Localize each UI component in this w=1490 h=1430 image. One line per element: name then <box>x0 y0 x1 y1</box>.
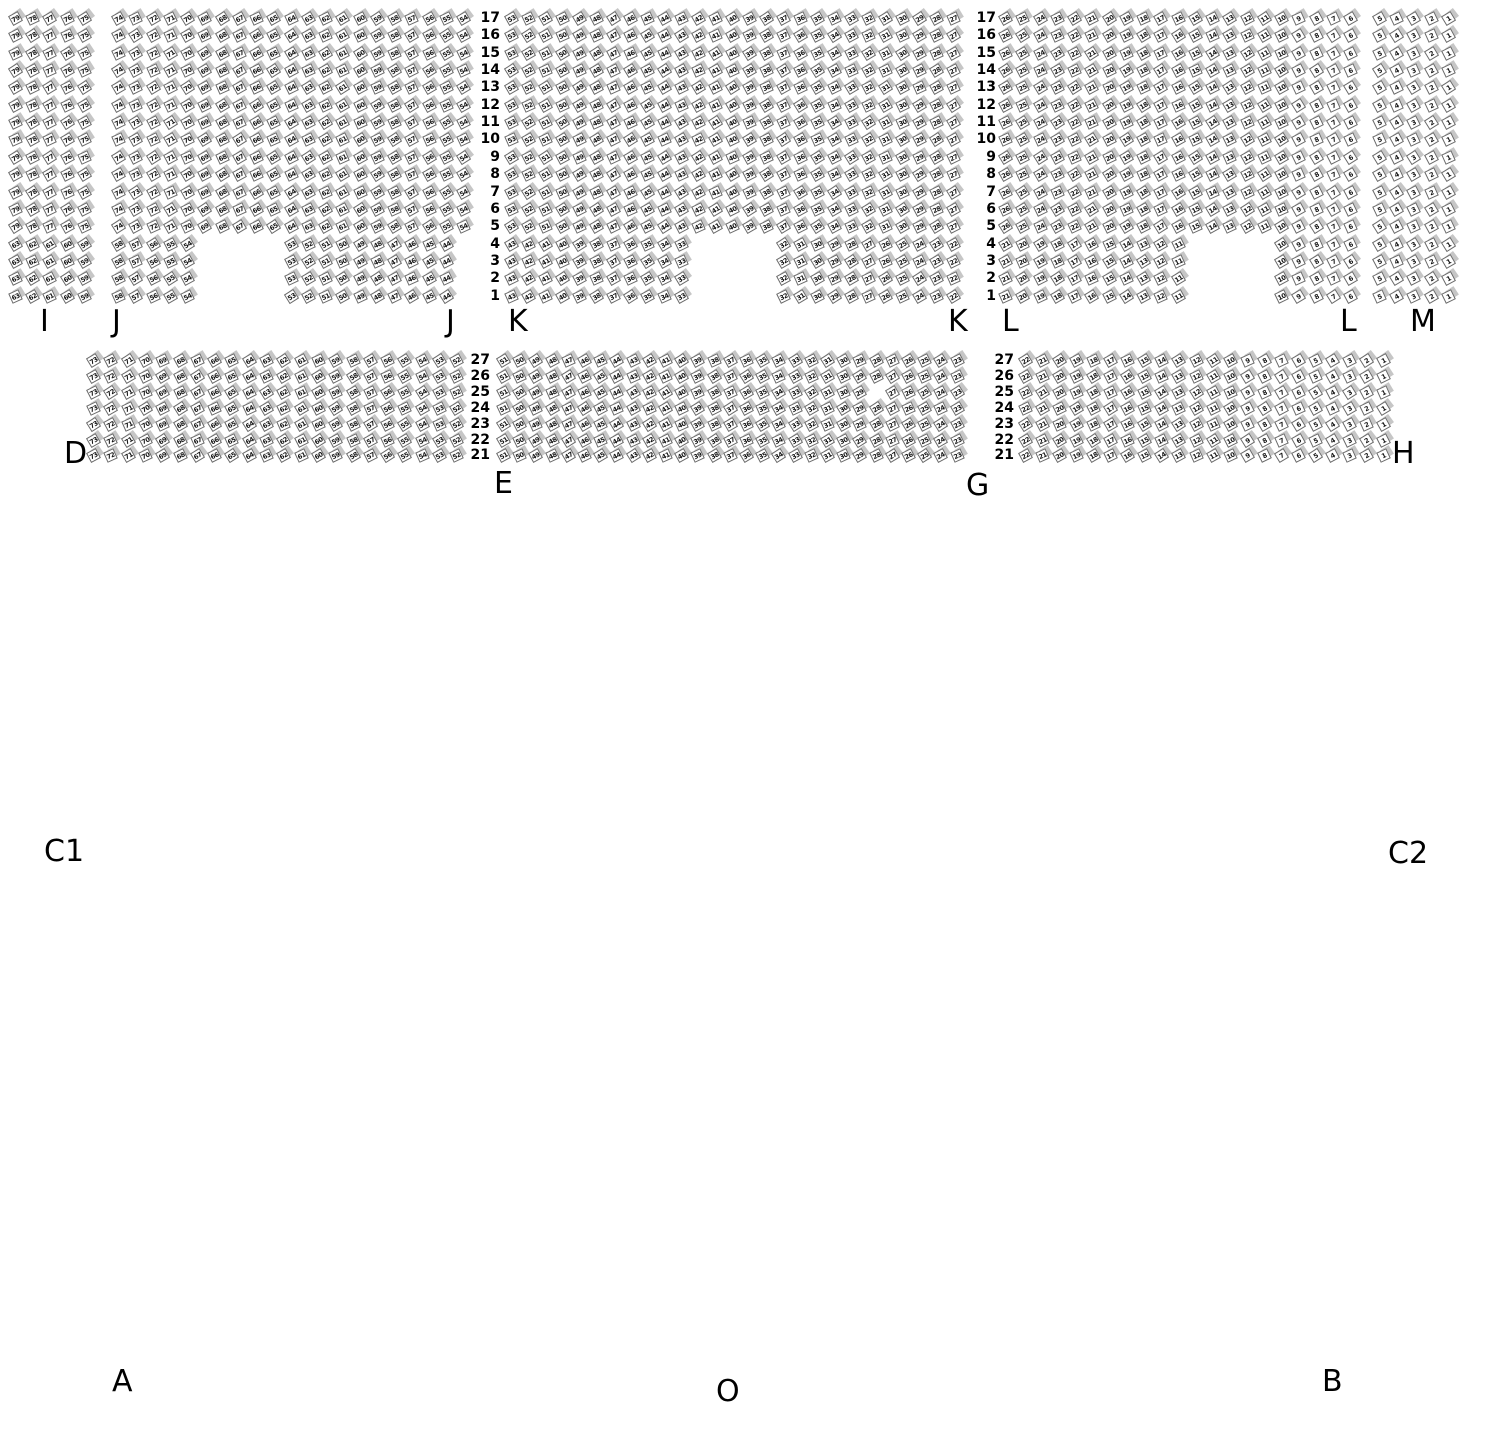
seat[interactable]: 63 <box>303 62 318 77</box>
seat[interactable]: 15 <box>1190 131 1205 146</box>
seat[interactable]: 70 <box>182 27 197 42</box>
seat[interactable]: 61 <box>296 384 311 399</box>
seat[interactable]: 50 <box>514 352 529 367</box>
seat[interactable]: 2 <box>1426 218 1441 233</box>
seat[interactable]: 69 <box>199 62 214 77</box>
seat[interactable]: 14 <box>1207 166 1222 181</box>
seat[interactable]: 53 <box>506 27 521 42</box>
seat[interactable]: 60 <box>355 131 370 146</box>
seat[interactable]: 19 <box>1121 131 1136 146</box>
seat[interactable]: 43 <box>676 79 691 94</box>
seat[interactable]: 68 <box>175 352 190 367</box>
seat[interactable]: 40 <box>727 131 742 146</box>
seat[interactable]: 55 <box>441 10 456 25</box>
seat[interactable]: 13 <box>1224 62 1239 77</box>
seat[interactable]: 59 <box>330 400 345 415</box>
seat[interactable]: 19 <box>1121 45 1136 60</box>
seat[interactable]: 8 <box>1311 218 1326 233</box>
seat[interactable]: 23 <box>1052 97 1067 112</box>
seat[interactable]: 28 <box>931 131 946 146</box>
seat[interactable]: 65 <box>268 131 283 146</box>
seat[interactable]: 3 <box>1408 253 1423 268</box>
seat[interactable]: 55 <box>165 236 180 251</box>
seat[interactable]: 5 <box>1374 253 1389 268</box>
seat[interactable]: 10 <box>1276 253 1291 268</box>
seat[interactable]: 72 <box>148 218 163 233</box>
seat[interactable]: 20 <box>1104 184 1119 199</box>
seat[interactable]: 35 <box>757 368 772 383</box>
seat[interactable]: 57 <box>406 10 421 25</box>
seat[interactable]: 70 <box>140 352 155 367</box>
seat[interactable]: 12 <box>1155 270 1170 285</box>
seat[interactable]: 34 <box>829 10 844 25</box>
seat[interactable]: 79 <box>10 10 25 25</box>
seat[interactable]: 74 <box>113 131 128 146</box>
seat[interactable]: 31 <box>880 166 895 181</box>
seat[interactable]: 9 <box>1293 270 1308 285</box>
seat[interactable]: 57 <box>406 45 421 60</box>
seat[interactable]: 53 <box>506 184 521 199</box>
seat[interactable]: 41 <box>710 149 725 164</box>
seat[interactable]: 14 <box>1207 114 1222 129</box>
seat[interactable]: 25 <box>919 432 934 447</box>
seat[interactable]: 36 <box>741 352 756 367</box>
seat[interactable]: 50 <box>557 10 572 25</box>
seat[interactable]: 8 <box>1311 79 1326 94</box>
seat[interactable]: 49 <box>574 218 589 233</box>
seat[interactable]: 37 <box>778 149 793 164</box>
seat[interactable]: 31 <box>880 114 895 129</box>
seat[interactable]: 24 <box>1035 131 1050 146</box>
seat[interactable]: 5 <box>1374 62 1389 77</box>
seat[interactable]: 4 <box>1391 236 1406 251</box>
seat[interactable]: 59 <box>372 218 387 233</box>
seat[interactable]: 47 <box>608 10 623 25</box>
seat[interactable]: 10 <box>1276 10 1291 25</box>
seat[interactable]: 3 <box>1408 97 1423 112</box>
seat[interactable]: 59 <box>79 253 94 268</box>
seat[interactable]: 31 <box>880 201 895 216</box>
seat[interactable]: 19 <box>1035 270 1050 285</box>
seat[interactable]: 48 <box>591 114 606 129</box>
seat[interactable]: 56 <box>382 400 397 415</box>
seat[interactable]: 47 <box>563 416 578 431</box>
seat[interactable]: 17 <box>1155 218 1170 233</box>
seat[interactable]: 4 <box>1391 288 1406 303</box>
seat[interactable]: 45 <box>595 384 610 399</box>
seat[interactable]: 60 <box>355 184 370 199</box>
seat[interactable]: 70 <box>182 166 197 181</box>
seat[interactable]: 4 <box>1391 253 1406 268</box>
seat[interactable]: 8 <box>1311 270 1326 285</box>
seat[interactable]: 34 <box>829 114 844 129</box>
seat[interactable]: 55 <box>165 288 180 303</box>
seat[interactable]: 38 <box>761 184 776 199</box>
seat[interactable]: 68 <box>217 10 232 25</box>
seat[interactable]: 53 <box>434 384 449 399</box>
seat[interactable]: 38 <box>709 447 724 462</box>
seat[interactable]: 16 <box>1173 149 1188 164</box>
seat[interactable]: 53 <box>506 131 521 146</box>
seat[interactable]: 22 <box>948 253 963 268</box>
seat[interactable]: 20 <box>1104 97 1119 112</box>
seat[interactable]: 36 <box>795 131 810 146</box>
seat[interactable]: 48 <box>547 352 562 367</box>
seat[interactable]: 46 <box>625 149 640 164</box>
seat[interactable]: 42 <box>644 384 659 399</box>
seat[interactable]: 6 <box>1293 352 1308 367</box>
seat[interactable]: 66 <box>251 149 266 164</box>
seat[interactable]: 27 <box>887 400 902 415</box>
seat[interactable]: 4 <box>1391 79 1406 94</box>
seat[interactable]: 74 <box>113 114 128 129</box>
seat[interactable]: 79 <box>10 79 25 94</box>
seat[interactable]: 6 <box>1345 270 1360 285</box>
seat[interactable]: 33 <box>790 368 805 383</box>
seat[interactable]: 29 <box>854 416 869 431</box>
seat[interactable]: 4 <box>1391 218 1406 233</box>
seat[interactable]: 53 <box>286 236 301 251</box>
seat[interactable]: 16 <box>1086 270 1101 285</box>
seat[interactable]: 56 <box>148 270 163 285</box>
seat[interactable]: 51 <box>540 184 555 199</box>
seat[interactable]: 54 <box>458 97 473 112</box>
seat[interactable]: 62 <box>278 447 293 462</box>
seat[interactable]: 79 <box>10 201 25 216</box>
seat[interactable]: 69 <box>199 218 214 233</box>
seat[interactable]: 10 <box>1276 149 1291 164</box>
seat[interactable]: 26 <box>880 253 895 268</box>
seat[interactable]: 41 <box>660 447 675 462</box>
seat[interactable]: 50 <box>514 416 529 431</box>
seat[interactable]: 50 <box>557 166 572 181</box>
seat[interactable]: 78 <box>27 149 42 164</box>
seat[interactable]: 60 <box>313 447 328 462</box>
seat[interactable]: 68 <box>175 384 190 399</box>
seat[interactable]: 3 <box>1408 236 1423 251</box>
seat[interactable]: 15 <box>1104 253 1119 268</box>
seat[interactable]: 57 <box>365 384 380 399</box>
seat[interactable]: 27 <box>948 184 963 199</box>
seat[interactable]: 14 <box>1207 218 1222 233</box>
seat[interactable]: 24 <box>935 368 950 383</box>
seat[interactable]: 27 <box>948 45 963 60</box>
seat[interactable]: 17 <box>1155 149 1170 164</box>
seat[interactable]: 54 <box>417 400 432 415</box>
seat[interactable]: 18 <box>1052 253 1067 268</box>
seat[interactable]: 61 <box>296 432 311 447</box>
seat[interactable]: 68 <box>217 166 232 181</box>
seat[interactable]: 47 <box>608 97 623 112</box>
seat[interactable]: 12 <box>1242 114 1257 129</box>
seat[interactable]: 71 <box>165 62 180 77</box>
seat[interactable]: 37 <box>725 400 740 415</box>
seat[interactable]: 11 <box>1259 10 1274 25</box>
seat[interactable]: 53 <box>506 10 521 25</box>
seat[interactable]: 34 <box>829 201 844 216</box>
seat[interactable]: 54 <box>417 432 432 447</box>
seat[interactable]: 65 <box>268 166 283 181</box>
seat[interactable]: 71 <box>165 184 180 199</box>
seat[interactable]: 63 <box>303 218 318 233</box>
seat[interactable]: 73 <box>88 384 103 399</box>
seat[interactable]: 65 <box>268 97 283 112</box>
seat[interactable]: 30 <box>897 97 912 112</box>
seat[interactable]: 45 <box>642 114 657 129</box>
seat[interactable]: 75 <box>79 184 94 199</box>
seat[interactable]: 23 <box>931 253 946 268</box>
seat[interactable]: 65 <box>268 27 283 42</box>
seat[interactable]: 41 <box>710 45 725 60</box>
seat[interactable]: 51 <box>540 79 555 94</box>
seat[interactable]: 54 <box>182 270 197 285</box>
seat[interactable]: 13 <box>1173 352 1188 367</box>
seat[interactable]: 57 <box>406 184 421 199</box>
seat[interactable]: 42 <box>644 352 659 367</box>
seat[interactable]: 47 <box>608 45 623 60</box>
seat[interactable]: 11 <box>1259 218 1274 233</box>
seat[interactable]: 36 <box>795 27 810 42</box>
seat[interactable]: 34 <box>829 27 844 42</box>
seat[interactable]: 25 <box>919 352 934 367</box>
seat[interactable]: 62 <box>27 253 42 268</box>
seat[interactable]: 45 <box>424 253 439 268</box>
seat[interactable]: 65 <box>268 184 283 199</box>
seat[interactable]: 11 <box>1173 253 1188 268</box>
seat[interactable]: 10 <box>1276 27 1291 42</box>
seat[interactable]: 13 <box>1224 97 1239 112</box>
seat[interactable]: 41 <box>540 288 555 303</box>
seat[interactable]: 5 <box>1374 79 1389 94</box>
seat[interactable]: 55 <box>399 400 414 415</box>
seat[interactable]: 61 <box>337 218 352 233</box>
seat[interactable]: 29 <box>829 270 844 285</box>
seat[interactable]: 57 <box>130 270 145 285</box>
seat[interactable]: 51 <box>540 131 555 146</box>
seat[interactable]: 27 <box>863 253 878 268</box>
seat[interactable]: 69 <box>157 368 172 383</box>
seat[interactable]: 61 <box>337 62 352 77</box>
seat[interactable]: 50 <box>337 288 352 303</box>
seat[interactable]: 35 <box>812 149 827 164</box>
seat[interactable]: 76 <box>62 184 77 199</box>
seat[interactable]: 35 <box>812 201 827 216</box>
seat[interactable]: 62 <box>320 45 335 60</box>
seat[interactable]: 34 <box>773 432 788 447</box>
seat[interactable]: 76 <box>62 201 77 216</box>
seat[interactable]: 5 <box>1374 114 1389 129</box>
seat[interactable]: 39 <box>744 114 759 129</box>
seat[interactable]: 58 <box>348 384 363 399</box>
seat[interactable]: 12 <box>1242 166 1257 181</box>
seat[interactable]: 5 <box>1374 184 1389 199</box>
seat[interactable]: 22 <box>1069 79 1084 94</box>
seat[interactable]: 32 <box>863 131 878 146</box>
seat[interactable]: 25 <box>1017 201 1032 216</box>
seat[interactable]: 31 <box>795 270 810 285</box>
seat[interactable]: 62 <box>320 97 335 112</box>
seat[interactable]: 43 <box>676 184 691 199</box>
seat[interactable]: 31 <box>822 400 837 415</box>
seat[interactable]: 8 <box>1311 114 1326 129</box>
seat[interactable]: 18 <box>1138 62 1153 77</box>
seat[interactable]: 57 <box>365 416 380 431</box>
seat[interactable]: 39 <box>744 201 759 216</box>
seat[interactable]: 70 <box>182 114 197 129</box>
seat[interactable]: 4 <box>1327 352 1342 367</box>
seat[interactable]: 67 <box>234 10 249 25</box>
seat[interactable]: 77 <box>44 62 59 77</box>
seat[interactable]: 8 <box>1311 288 1326 303</box>
seat[interactable]: 25 <box>1017 62 1032 77</box>
seat[interactable]: 29 <box>854 400 869 415</box>
seat[interactable]: 65 <box>268 114 283 129</box>
seat[interactable]: 11 <box>1259 184 1274 199</box>
seat[interactable]: 63 <box>10 288 25 303</box>
seat[interactable]: 39 <box>692 400 707 415</box>
seat[interactable]: 36 <box>625 236 640 251</box>
seat[interactable]: 66 <box>209 416 224 431</box>
seat[interactable]: 9 <box>1293 218 1308 233</box>
seat[interactable]: 33 <box>676 236 691 251</box>
seat[interactable]: 23 <box>1052 184 1067 199</box>
seat[interactable]: 9 <box>1293 166 1308 181</box>
seat[interactable]: 72 <box>148 97 163 112</box>
seat[interactable]: 41 <box>710 27 725 42</box>
seat[interactable]: 41 <box>540 270 555 285</box>
seat[interactable]: 55 <box>441 62 456 77</box>
seat[interactable]: 51 <box>320 236 335 251</box>
seat[interactable]: 24 <box>1035 27 1050 42</box>
seat[interactable]: 11 <box>1208 352 1223 367</box>
seat[interactable]: 29 <box>914 45 929 60</box>
seat[interactable]: 10 <box>1276 79 1291 94</box>
seat[interactable]: 30 <box>897 131 912 146</box>
seat[interactable]: 23 <box>1052 27 1067 42</box>
seat[interactable]: 12 <box>1242 10 1257 25</box>
seat[interactable]: 66 <box>251 114 266 129</box>
seat[interactable]: 47 <box>563 432 578 447</box>
seat[interactable]: 51 <box>540 114 555 129</box>
seat[interactable]: 6 <box>1345 131 1360 146</box>
seat[interactable]: 69 <box>199 79 214 94</box>
seat[interactable]: 68 <box>217 149 232 164</box>
seat[interactable]: 59 <box>330 416 345 431</box>
seat[interactable]: 74 <box>113 218 128 233</box>
seat[interactable]: 25 <box>1017 97 1032 112</box>
seat[interactable]: 27 <box>863 288 878 303</box>
seat[interactable]: 34 <box>659 270 674 285</box>
seat[interactable]: 9 <box>1242 352 1257 367</box>
seat[interactable]: 24 <box>1035 184 1050 199</box>
seat[interactable]: 56 <box>424 97 439 112</box>
seat[interactable]: 57 <box>365 368 380 383</box>
seat[interactable]: 53 <box>434 352 449 367</box>
seat[interactable]: 2 <box>1361 352 1376 367</box>
seat[interactable]: 64 <box>286 79 301 94</box>
seat[interactable]: 47 <box>608 166 623 181</box>
seat[interactable]: 74 <box>113 62 128 77</box>
seat[interactable]: 29 <box>854 384 869 399</box>
seat[interactable]: 28 <box>871 352 886 367</box>
seat[interactable]: 12 <box>1155 236 1170 251</box>
seat[interactable]: 71 <box>165 218 180 233</box>
seat[interactable]: 51 <box>540 27 555 42</box>
seat[interactable]: 14 <box>1207 97 1222 112</box>
seat[interactable]: 64 <box>286 184 301 199</box>
seat[interactable]: 37 <box>778 184 793 199</box>
seat[interactable]: 44 <box>659 27 674 42</box>
seat[interactable]: 16 <box>1173 114 1188 129</box>
seat[interactable]: 52 <box>523 131 538 146</box>
seat[interactable]: 28 <box>846 288 861 303</box>
seat[interactable]: 16 <box>1086 288 1101 303</box>
seat[interactable]: 28 <box>931 97 946 112</box>
seat[interactable]: 40 <box>727 62 742 77</box>
seat[interactable]: 10 <box>1276 97 1291 112</box>
seat[interactable]: 13 <box>1138 270 1153 285</box>
seat[interactable]: 41 <box>660 432 675 447</box>
seat[interactable]: 51 <box>498 400 513 415</box>
seat[interactable]: 51 <box>498 432 513 447</box>
seat[interactable]: 33 <box>846 184 861 199</box>
seat[interactable]: 59 <box>79 270 94 285</box>
seat[interactable]: 4 <box>1391 149 1406 164</box>
seat[interactable]: 23 <box>1052 131 1067 146</box>
seat[interactable]: 54 <box>458 10 473 25</box>
seat[interactable]: 72 <box>148 79 163 94</box>
seat[interactable]: 1 <box>1443 27 1458 42</box>
seat[interactable]: 35 <box>757 416 772 431</box>
seat[interactable]: 26 <box>1000 27 1015 42</box>
seat[interactable]: 61 <box>337 149 352 164</box>
seat[interactable]: 26 <box>880 288 895 303</box>
seat[interactable]: 56 <box>382 384 397 399</box>
seat[interactable]: 43 <box>628 400 643 415</box>
seat[interactable]: 27 <box>863 236 878 251</box>
seat[interactable]: 24 <box>935 384 950 399</box>
seat[interactable]: 60 <box>62 236 77 251</box>
seat[interactable]: 15 <box>1104 288 1119 303</box>
seat[interactable]: 68 <box>175 368 190 383</box>
seat[interactable]: 25 <box>1017 27 1032 42</box>
seat[interactable]: 52 <box>303 236 318 251</box>
seat[interactable]: 79 <box>10 45 25 60</box>
seat[interactable]: 9 <box>1293 45 1308 60</box>
seat[interactable]: 31 <box>795 236 810 251</box>
seat[interactable]: 77 <box>44 27 59 42</box>
seat[interactable]: 40 <box>557 270 572 285</box>
seat[interactable]: 5 <box>1374 27 1389 42</box>
seat[interactable]: 78 <box>27 45 42 60</box>
seat[interactable]: 71 <box>165 27 180 42</box>
seat[interactable]: 24 <box>914 253 929 268</box>
seat[interactable]: 51 <box>320 253 335 268</box>
seat[interactable]: 63 <box>303 27 318 42</box>
seat[interactable]: 53 <box>506 79 521 94</box>
seat[interactable]: 78 <box>27 201 42 216</box>
seat[interactable]: 12 <box>1155 288 1170 303</box>
seat[interactable]: 61 <box>44 270 59 285</box>
seat[interactable]: 37 <box>778 27 793 42</box>
seat[interactable]: 66 <box>251 27 266 42</box>
seat[interactable]: 4 <box>1391 97 1406 112</box>
seat[interactable]: 3 <box>1408 184 1423 199</box>
seat[interactable]: 16 <box>1173 97 1188 112</box>
seat[interactable]: 23 <box>952 352 967 367</box>
seat[interactable]: 49 <box>530 368 545 383</box>
seat[interactable]: 41 <box>710 166 725 181</box>
